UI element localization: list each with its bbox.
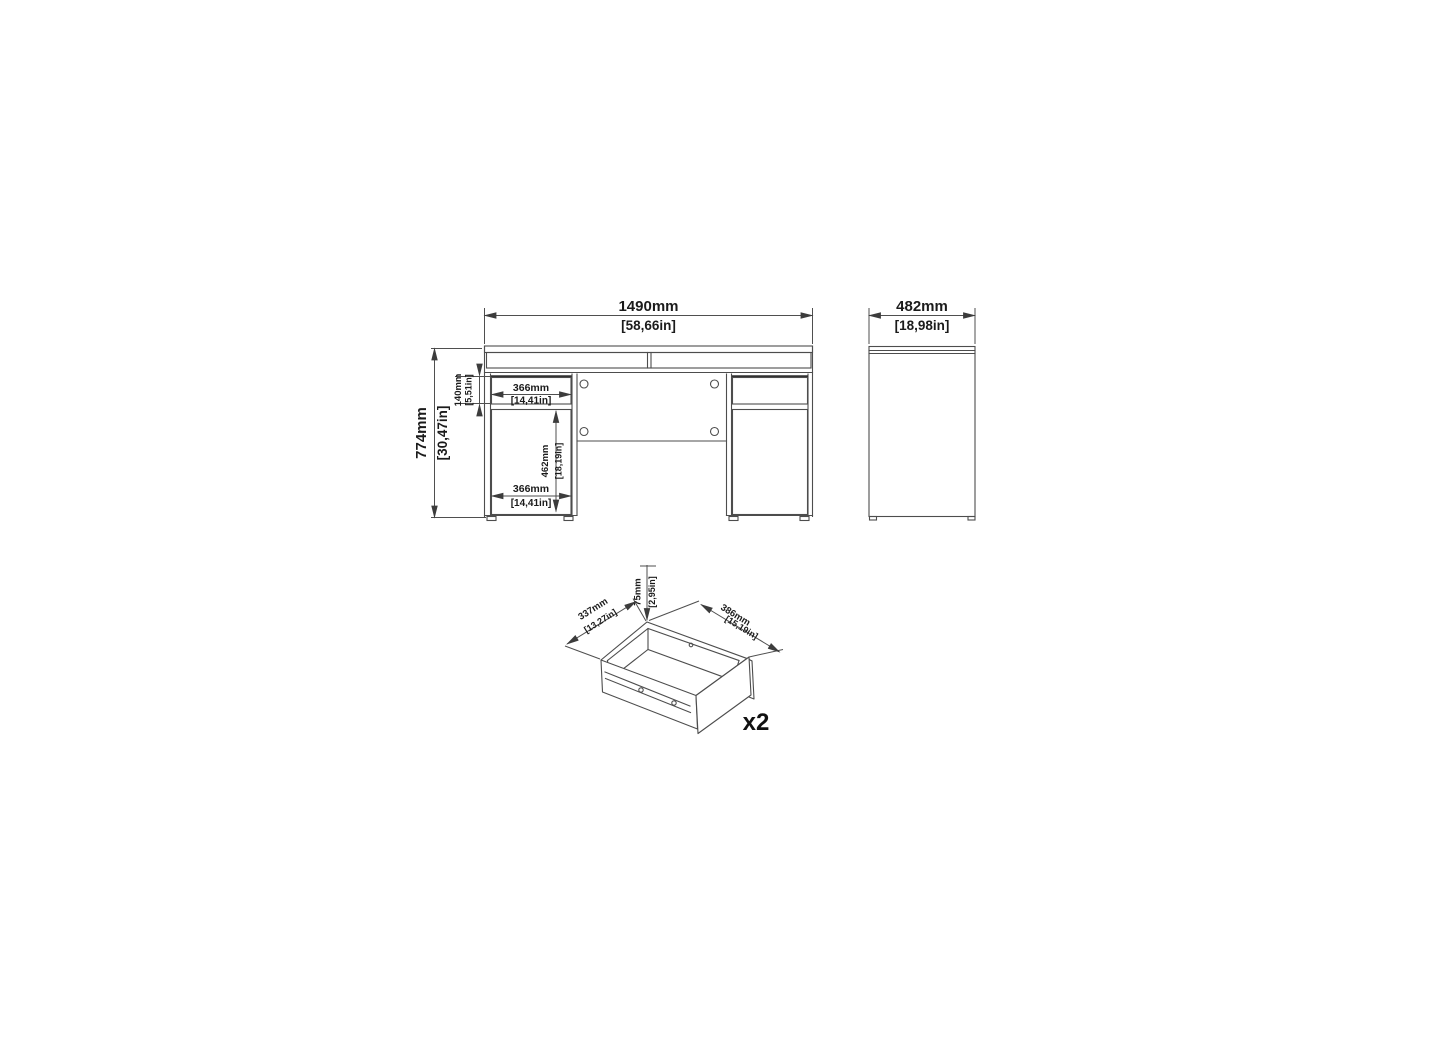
side-depth-mm-label: 482mm — [896, 298, 948, 315]
foot — [487, 517, 496, 521]
door-width-dimension: 366mm [14,41in] — [492, 483, 572, 509]
drawer-isometric-view: 75mm [2,95in] 337mm [13,27in] 386mm [15,… — [565, 565, 783, 736]
screw-hole — [711, 380, 719, 388]
foot — [729, 517, 738, 521]
foot — [800, 517, 809, 521]
front-view: 1490mm [58,66in] 774mm [30,47in] 140mm [… — [413, 298, 813, 521]
side-depth-dimension: 482mm [18,98in] — [869, 298, 975, 344]
technical-drawing: 1490mm [58,66in] 774mm [30,47in] 140mm [… — [0, 0, 1440, 1048]
side-outline — [869, 347, 975, 517]
drawing-canvas: 1490mm [58,66in] 774mm [30,47in] 140mm [… — [0, 0, 1440, 1048]
front-width-mm-label: 1490mm — [618, 298, 678, 315]
foot — [564, 517, 573, 521]
right-door — [733, 410, 808, 515]
right-drawer-front — [733, 378, 808, 405]
side-view: 482mm [18,98in] — [869, 298, 975, 520]
desk-top — [485, 346, 813, 353]
drawer-iso-height-dimension: 75mm [2,95in] — [633, 565, 658, 620]
drawer-height-mm-label: 140mm — [453, 374, 464, 407]
quantity-label: x2 — [743, 709, 770, 736]
front-height-dimension: 774mm [30,47in] — [413, 349, 486, 518]
drawer-width-dimension: 366mm [14,41in] — [492, 382, 572, 407]
drawer-width-in-label: [14,41in] — [511, 396, 552, 407]
drawer-height-in-label: [5,51in] — [464, 374, 474, 406]
drawer-width-mm-label: 366mm — [513, 382, 549, 394]
shelf-strip — [487, 353, 812, 369]
foot — [968, 517, 975, 521]
screw-hole — [580, 380, 588, 388]
front-height-mm-label: 774mm — [413, 407, 430, 459]
door-height-mm-label: 462mm — [540, 445, 551, 478]
screw-hole — [580, 428, 588, 436]
drawer-rim-outer — [601, 622, 747, 660]
front-width-dimension: 1490mm [58,66in] — [485, 298, 813, 344]
door-width-in-label: [14,41in] — [511, 498, 552, 509]
drawer-side-panel — [601, 660, 698, 729]
front-height-in-label: [30,47in] — [435, 406, 450, 461]
door-width-mm-label: 366mm — [513, 483, 549, 495]
screw-hole — [711, 428, 719, 436]
foot — [870, 517, 877, 521]
side-depth-in-label: [18,98in] — [895, 318, 950, 333]
drawer-iso-width-dimension: 386mm [15,19in] — [649, 601, 783, 657]
drawer-height-in-label: [2,95in] — [647, 576, 657, 608]
door-height-in-label: [18,19in] — [554, 443, 564, 480]
drawer-rim-inner — [608, 629, 740, 661]
drawer-height-mm-label: 75mm — [633, 578, 644, 605]
front-width-in-label: [58,66in] — [621, 318, 676, 333]
